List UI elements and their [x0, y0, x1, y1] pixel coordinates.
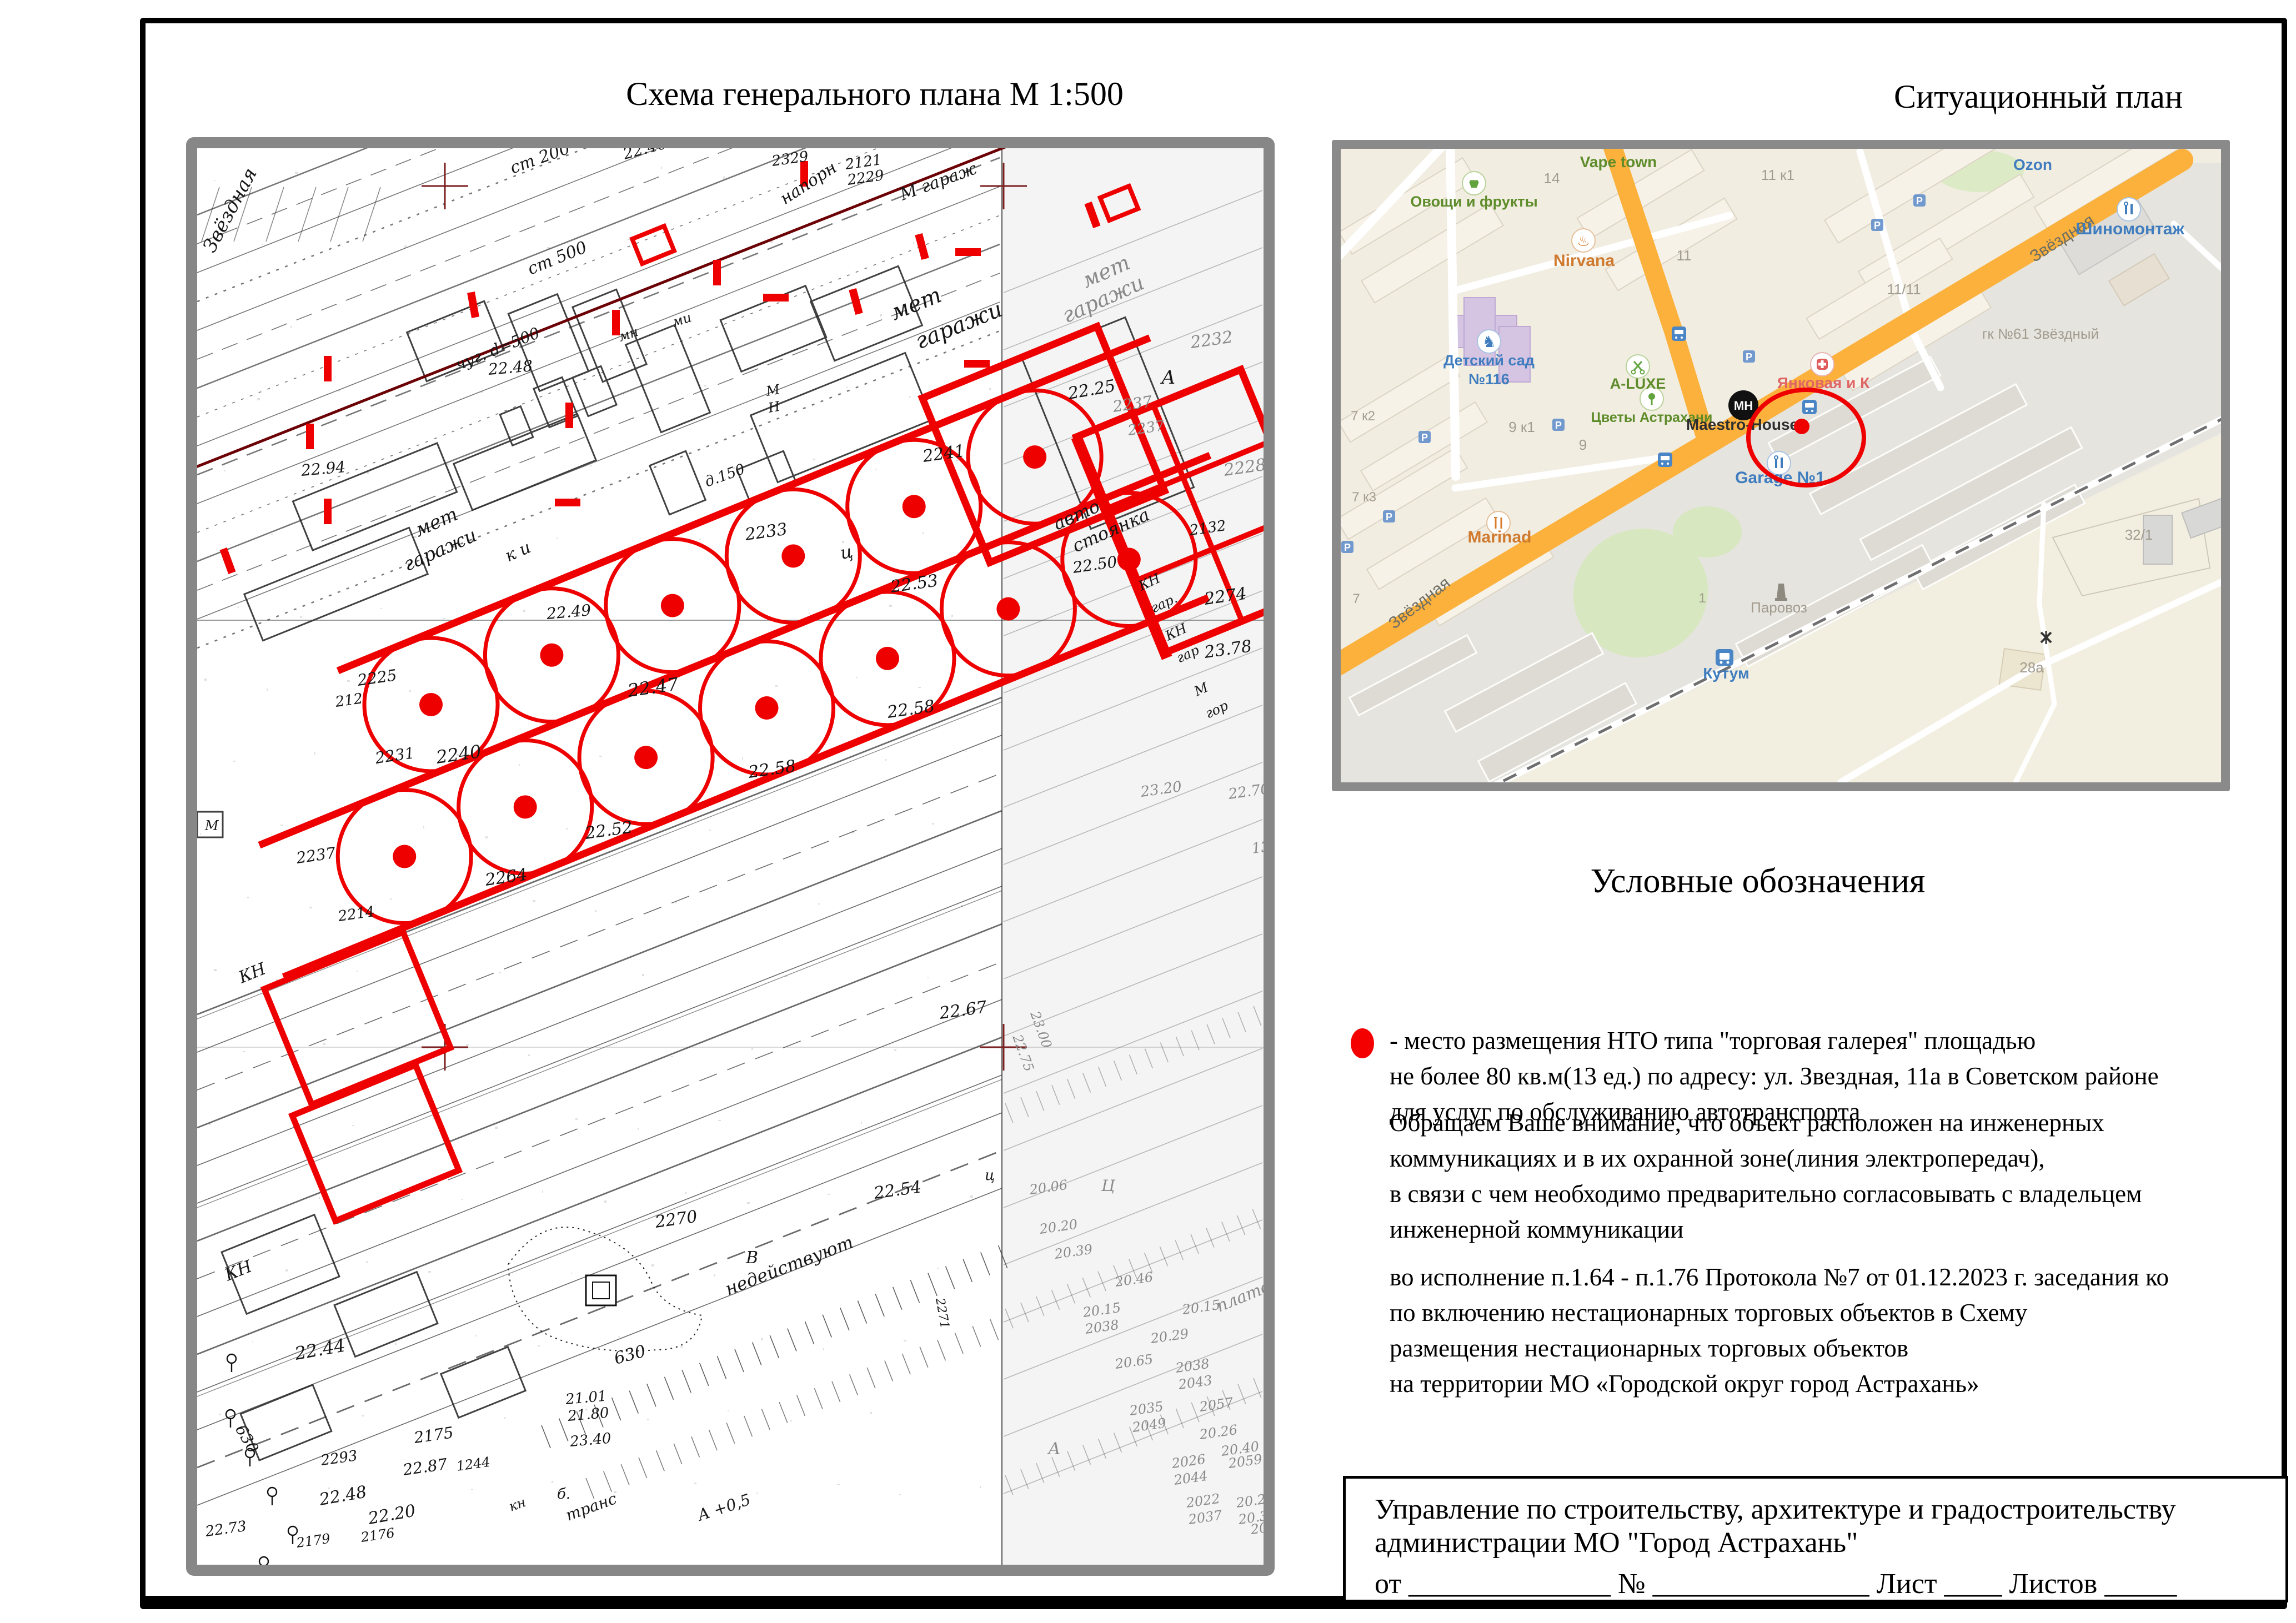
tools-icon [2117, 198, 2140, 221]
situational-map: ЗвёзднаяЗвёздная♨♞МНPPPPPPPОвощи и фрукт… [1341, 149, 2221, 782]
map-label: Шиномонтаж [2076, 220, 2184, 238]
svg-text:22.48: 22.48 [487, 356, 534, 379]
basket-icon [1462, 172, 1486, 195]
legend-note-protocol: во исполнение п.1.64 - п.1.76 Протокола … [1390, 1259, 2296, 1401]
svg-text:P: P [1916, 195, 1923, 207]
legend-note-line: инженерной коммуникации [1390, 1212, 2296, 1247]
map-label: Паровоз [1751, 599, 1807, 616]
bus-icon [1672, 326, 1686, 341]
map-label: 9 [1579, 436, 1587, 453]
svg-text:P: P [1555, 420, 1562, 431]
legend-title: Условные обозначения [1500, 862, 2016, 901]
legend-marker-line: не более 80 кв.м(13 ед.) по адресу: ул. … [1390, 1058, 2296, 1094]
svg-text:P: P [1421, 432, 1428, 443]
svg-text:М: М [204, 818, 219, 833]
hookah-icon: ♨ [1572, 229, 1595, 252]
map-label: №116 [1468, 371, 1510, 388]
legend-note-line: по включению нестационарных торговых объ… [1390, 1295, 2296, 1330]
legend-note-line: размещения нестационарных торговых объек… [1390, 1330, 2296, 1366]
map-label: 1 [1698, 591, 1706, 606]
situational-map-frame: ЗвёзднаяЗвёздная♨♞МНPPPPPPPОвощи и фрукт… [1332, 140, 2230, 791]
station-icon [1716, 649, 1733, 666]
map-label: Детский сад [1443, 352, 1535, 369]
svg-text:А: А [1047, 1439, 1061, 1459]
map-label: 9 к1 [1508, 419, 1535, 435]
svg-text:ц: ц [985, 1167, 995, 1184]
kindergarten-icon: ♞ [1477, 330, 1501, 353]
map-label: 7 к3 [1352, 490, 1376, 505]
svg-text:♨: ♨ [1577, 233, 1590, 250]
legend-note-line: Обращаем Ваше внимание, что объект распо… [1390, 1105, 2296, 1140]
map-label: 32/1 [2125, 526, 2153, 543]
svg-text:P: P [1386, 511, 1392, 522]
document-page: { "titles": { "plan": "Схема генеральног… [0, 0, 2296, 1623]
legend-note-line: в связи с чем необходимо предварительно … [1390, 1176, 2296, 1212]
legend-note-communications: Обращаем Ваше внимание, что объект распо… [1390, 1105, 2296, 1247]
map-label: 28а [2019, 659, 2044, 676]
svg-text:134: 134 [1251, 837, 1264, 857]
map-label: Овощи и фрукты [1410, 193, 1537, 210]
parking-icon: P [1743, 350, 1755, 363]
svg-text:б.: б. [557, 1486, 570, 1503]
map-label: Vape town [1580, 153, 1657, 170]
stamp-requisites-line: от ______________ № _______________ Лист… [1375, 1567, 2285, 1601]
scissors-icon [1626, 355, 1650, 378]
legend-note-line: на территории МО «Городской округ город … [1390, 1366, 2296, 1401]
stamp-organization-line2: администрации МО "Город Астрахань" [1375, 1526, 2285, 1560]
svg-text:В: В [745, 1248, 758, 1268]
nto-location-marker-symbol [1351, 1028, 1374, 1058]
svg-text:♞: ♞ [1482, 333, 1496, 351]
parking-icon: P [1341, 541, 1353, 553]
map-label: Кутум [1703, 665, 1749, 682]
title-block-stamp: Управление по строительству, архитектуре… [1343, 1476, 2288, 1602]
map-label: гк №61 Звёздный [1982, 325, 2099, 342]
svg-text:А: А [1160, 366, 1176, 389]
map-label: 14 [1544, 170, 1560, 187]
pharmacy-icon [1811, 353, 1834, 376]
bus-icon [1802, 400, 1817, 414]
svg-text:22.49: 22.49 [545, 601, 592, 623]
stamp-organization-line1: Управление по строительству, архитектуре… [1375, 1493, 2285, 1526]
svg-text:P: P [1874, 220, 1881, 231]
parking-icon: P [1913, 194, 1926, 207]
map-label: 11 [1677, 247, 1692, 264]
map-label: A-LUXE [1610, 375, 1666, 392]
parking-icon: P [1552, 419, 1565, 431]
svg-text:22.94: 22.94 [300, 458, 347, 480]
general-plan-title: Схема генерального плана М 1:500 [444, 75, 1305, 113]
green-area [1673, 506, 1742, 557]
map-label: Marinad [1467, 528, 1531, 546]
map-label: 11/11 [1887, 281, 1921, 298]
map-label: 7 [1352, 591, 1360, 606]
nto-map-dot [1794, 419, 1809, 434]
map-label: 11 к1 [1761, 167, 1794, 183]
map-label: 7 к2 [1351, 409, 1375, 424]
parking-icon: P [1418, 431, 1431, 443]
svg-text:Ц: Ц [1101, 1177, 1116, 1195]
svg-text:МН: МН [1734, 399, 1753, 413]
general-plan-drawing: Звёзднаяст 20022.40232921212229напорнМ г… [197, 148, 1264, 1565]
legend-note-line: во исполнение п.1.64 - п.1.76 Протокола … [1390, 1259, 2296, 1295]
parking-icon: P [1383, 510, 1395, 522]
svg-text:P: P [1344, 542, 1351, 553]
legend-marker-line: - место размещения НТО типа "торговая га… [1390, 1023, 2296, 1058]
map-label: Maestro-House [1686, 416, 1798, 433]
svg-text:P: P [1746, 351, 1752, 363]
legend-note-line: коммуникациях и в их охранной зоне(линия… [1390, 1140, 2296, 1176]
map-label: Nirvana [1553, 252, 1615, 270]
map-label: Ozon [2013, 156, 2052, 173]
general-plan-drawing-frame: Звёзднаяст 20022.40232921212229напорнМ г… [186, 137, 1275, 1576]
bus-icon [1658, 453, 1672, 467]
map-label: Янковая и К [1777, 374, 1870, 391]
parking-icon: P [1871, 219, 1883, 231]
situational-plan-title: Ситуационный план [1861, 78, 2216, 116]
